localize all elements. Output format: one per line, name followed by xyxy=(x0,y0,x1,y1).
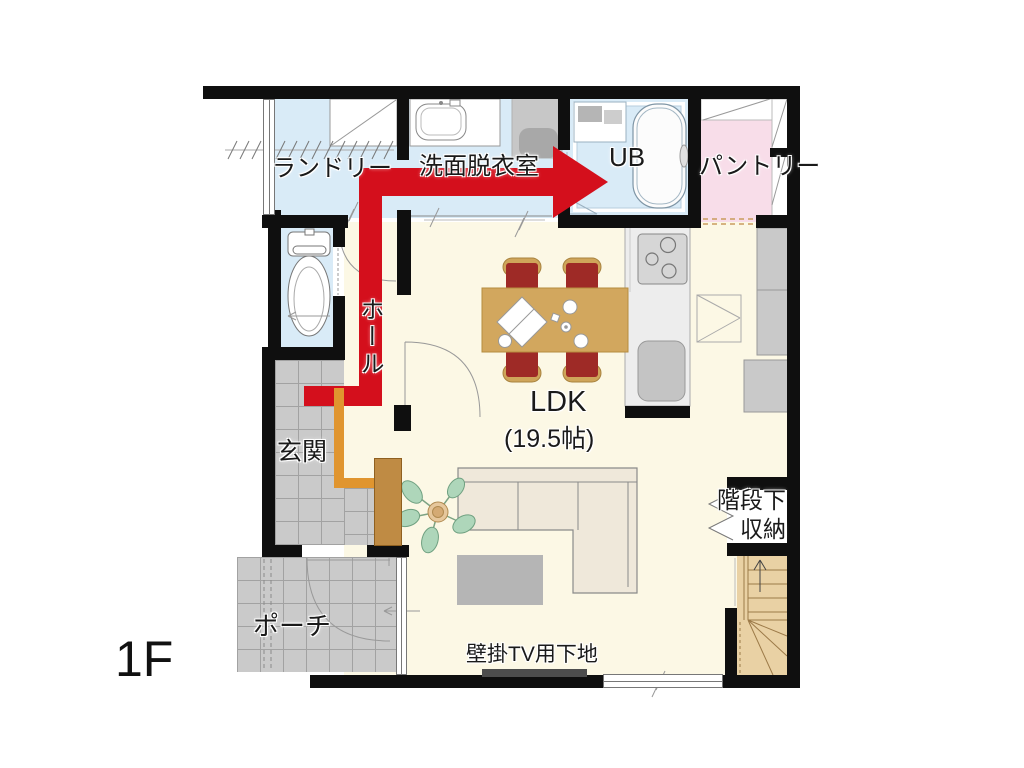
room-label-ldk-size: (19.5帖) xyxy=(504,419,594,455)
room-label-pantry: パントリー xyxy=(699,146,820,181)
kitchen-fixtures xyxy=(625,222,790,412)
room-label-hall: ホール xyxy=(352,297,387,378)
sofa-set xyxy=(457,468,637,605)
wall-entrance-left xyxy=(262,360,275,557)
room-label-porch: ポーチ xyxy=(253,606,331,643)
window-ldk-porch xyxy=(396,557,407,675)
tv-backing-bar xyxy=(482,669,587,677)
wall-front-right xyxy=(367,545,409,557)
wall-bottom-right xyxy=(721,675,800,688)
wall-hall-post xyxy=(394,405,411,431)
stairs-treads xyxy=(735,556,787,675)
wall-toilet-left xyxy=(268,210,281,360)
wall-pantry-bottom xyxy=(756,215,800,228)
room-label-ldk: LDK xyxy=(530,386,586,419)
entrance-step-vertical xyxy=(334,388,344,488)
note-tv-wall: 壁掛TV用下地 xyxy=(466,638,598,668)
wall-hall-stub xyxy=(397,210,411,295)
flow-arrow-head xyxy=(553,146,608,218)
entrance-step-horizontal xyxy=(334,478,378,488)
room-label-stair-storage-line2: 収納 xyxy=(740,510,786,544)
door-arcs xyxy=(307,225,480,641)
rug-icon xyxy=(457,555,543,605)
wall-front-left xyxy=(262,545,302,557)
room-label-laundry: ランドリー xyxy=(272,148,392,183)
sink-icon xyxy=(638,341,685,401)
floor-label: 1F xyxy=(115,630,173,688)
window-ldk-bottom xyxy=(603,674,723,688)
room-label-unit-bath: UB xyxy=(609,142,645,173)
wall-toilet-bottom xyxy=(262,347,345,360)
room-label-washroom: 洗面脱衣室 xyxy=(419,146,539,181)
wall-toilet-right-upper xyxy=(333,215,345,247)
wall-kitchen-end xyxy=(625,406,690,418)
refrigerator-space-icon xyxy=(697,295,741,342)
wall-top xyxy=(203,86,800,99)
room-label-entrance: 玄関 xyxy=(277,432,327,468)
laundry-fixtures xyxy=(330,99,397,146)
floor-plan: ランドリー 洗面脱衣室 UB パントリー ホール 玄関 ポーチ LDK (19.… xyxy=(0,0,1024,768)
dining-set xyxy=(482,258,628,382)
wall-stairs-left xyxy=(725,608,737,675)
wall-storage-bottom xyxy=(727,543,787,556)
shoe-cabinet-icon xyxy=(374,458,402,546)
wall-laundry-washroom xyxy=(397,86,409,160)
wall-ub-left-upper xyxy=(558,86,570,150)
